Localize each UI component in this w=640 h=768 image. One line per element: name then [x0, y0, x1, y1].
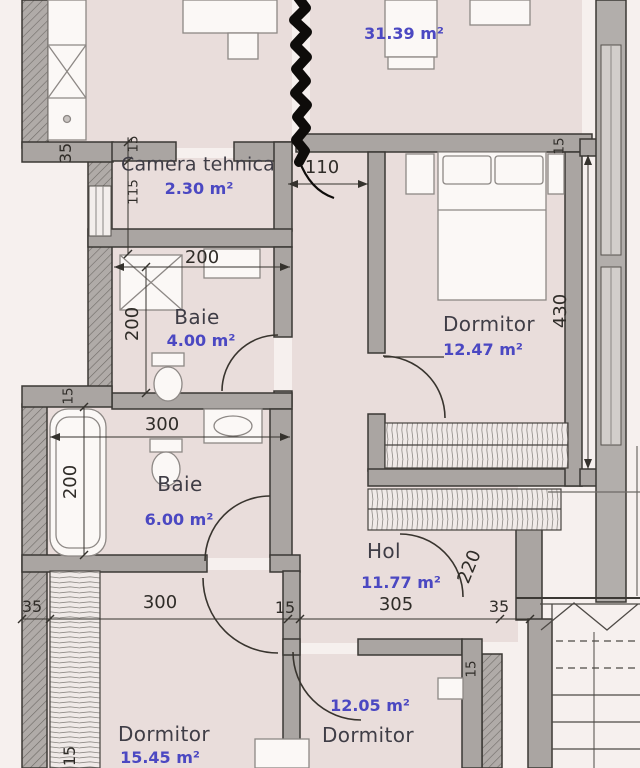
dimension-label: 15	[62, 387, 76, 404]
dimension-label: 110	[305, 159, 339, 177]
area-label-dormitor-est: 12.47 m²	[443, 342, 523, 358]
area-label-baie-mica: 4.00 m²	[167, 333, 236, 349]
area-label-hol: 11.77 m²	[361, 575, 441, 591]
floorplan-drawing	[0, 0, 640, 768]
dimension-label: 35	[22, 599, 42, 615]
dimension-label: 15	[275, 600, 295, 616]
room-name-dormitor-sud: Dormitor	[322, 725, 414, 745]
window-west	[89, 186, 111, 236]
window-wall	[596, 0, 626, 602]
dimension-label: 200	[185, 249, 219, 267]
dimension-label: 200	[124, 307, 142, 341]
pillow	[495, 156, 543, 184]
dimension-label: 35	[489, 599, 509, 615]
room-name-dormitor-est: Dormitor	[443, 314, 535, 334]
dimension-label: 300	[143, 594, 177, 612]
dresser	[255, 739, 309, 768]
area-label-baie-mare: 6.00 m²	[145, 512, 214, 528]
area-label-camera-tehnica: 2.30 m²	[165, 181, 234, 197]
dimension-label: 200	[62, 465, 80, 499]
dimension-label: 15	[465, 660, 479, 677]
sink-vanity	[204, 409, 262, 443]
dimension-label: 15	[62, 746, 78, 766]
dimension-label: 15	[127, 135, 141, 152]
dimension-label: 35	[58, 143, 74, 163]
area-label-dormitor-sud-vest: 15.45 m²	[120, 750, 200, 766]
nightstand-right	[548, 154, 564, 194]
floor-plan: 31.39 m² Camera tehnica 2.30 m² Dormitor…	[0, 0, 640, 768]
toilet-tank	[150, 439, 182, 452]
area-label-dormitor-sud: 12.05 m²	[330, 698, 410, 714]
room-name-baie-mica: Baie	[174, 307, 219, 327]
dimension-label: 300	[145, 416, 179, 434]
area-label-living: 31.39 m²	[364, 26, 444, 42]
table	[183, 0, 277, 33]
dimension-label: 305	[379, 596, 413, 614]
toilet	[154, 367, 182, 401]
radiator	[438, 678, 463, 699]
toilet-tank	[152, 353, 184, 366]
pillow	[443, 156, 491, 184]
room-name-hol: Hol	[367, 541, 401, 561]
dimension-label: 430	[552, 294, 570, 328]
room-name-dormitor-sud-vest: Dormitor	[118, 724, 210, 744]
chair	[228, 33, 258, 59]
room-name-baie-mare: Baie	[157, 474, 202, 494]
room-name-camera-tehnica: Camera tehnica	[121, 156, 275, 175]
nightstand-left	[406, 154, 434, 194]
side-table	[470, 0, 530, 25]
dimension-label: 115	[127, 179, 141, 205]
dimension-label: 15	[553, 137, 567, 154]
